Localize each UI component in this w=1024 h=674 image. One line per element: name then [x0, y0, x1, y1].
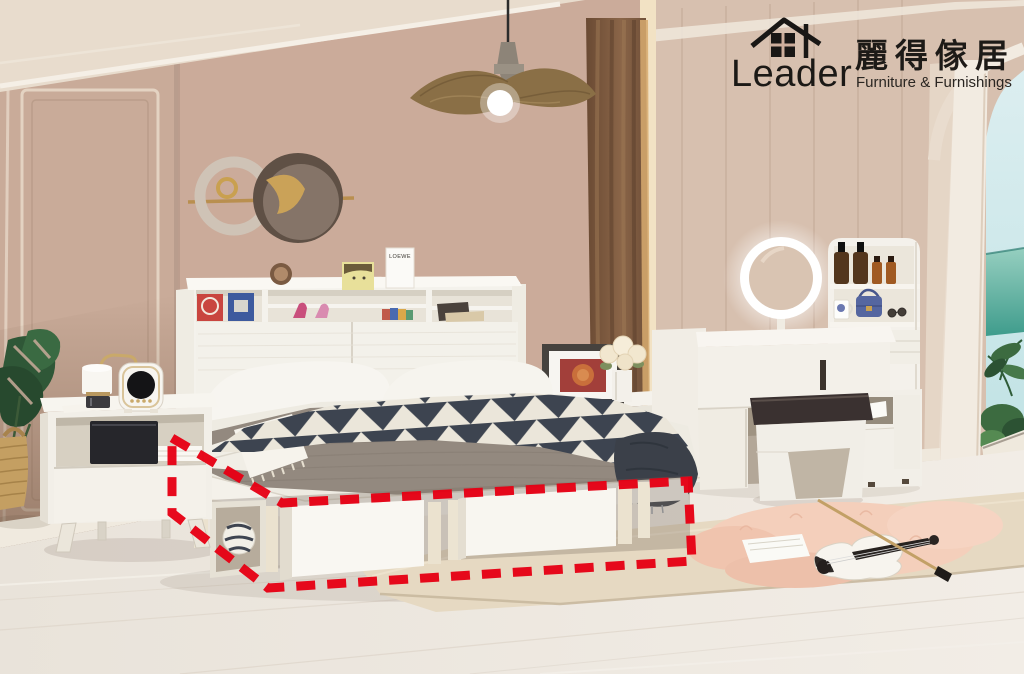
loewe-box-label: LOEWE [389, 254, 411, 260]
window-sea [986, 248, 1024, 336]
arched-window [924, 48, 1024, 472]
bedroom-scene: LOEWE [0, 0, 1024, 674]
black-storage-box [90, 421, 158, 464]
bed-leg [638, 482, 650, 538]
nightstand-drawer [54, 463, 206, 523]
storage-box-1 [292, 500, 424, 577]
stool-arch [788, 448, 850, 499]
cabinet-door [894, 395, 920, 469]
drawer-handle [820, 360, 826, 390]
books-stack [158, 446, 202, 461]
light-bulb [487, 90, 513, 116]
vanity [696, 220, 922, 501]
bed-leg [428, 502, 441, 564]
mug [834, 300, 852, 319]
desk-left-panel [698, 408, 748, 490]
lamp-base [86, 396, 110, 408]
storage-box-2 [466, 488, 616, 556]
loewe-box: LOEWE [386, 248, 414, 288]
woven-basket [0, 429, 28, 510]
vanity-stool [750, 393, 873, 501]
wall-art-disc-inner [263, 164, 339, 240]
bed-leg [266, 506, 278, 572]
brand-tagline: Furniture & Furnishings [856, 74, 1012, 91]
violin-scroll [929, 535, 939, 545]
brand-name-zh: 麗得傢居 [855, 36, 1015, 75]
alarm-clock [119, 363, 163, 413]
brand-name-en: Leader [731, 53, 852, 95]
clock-face [127, 371, 155, 399]
violin-chinrest [817, 560, 831, 574]
bed-leg [618, 486, 632, 544]
bedroom-product-photo: LOEWE [0, 0, 1024, 674]
